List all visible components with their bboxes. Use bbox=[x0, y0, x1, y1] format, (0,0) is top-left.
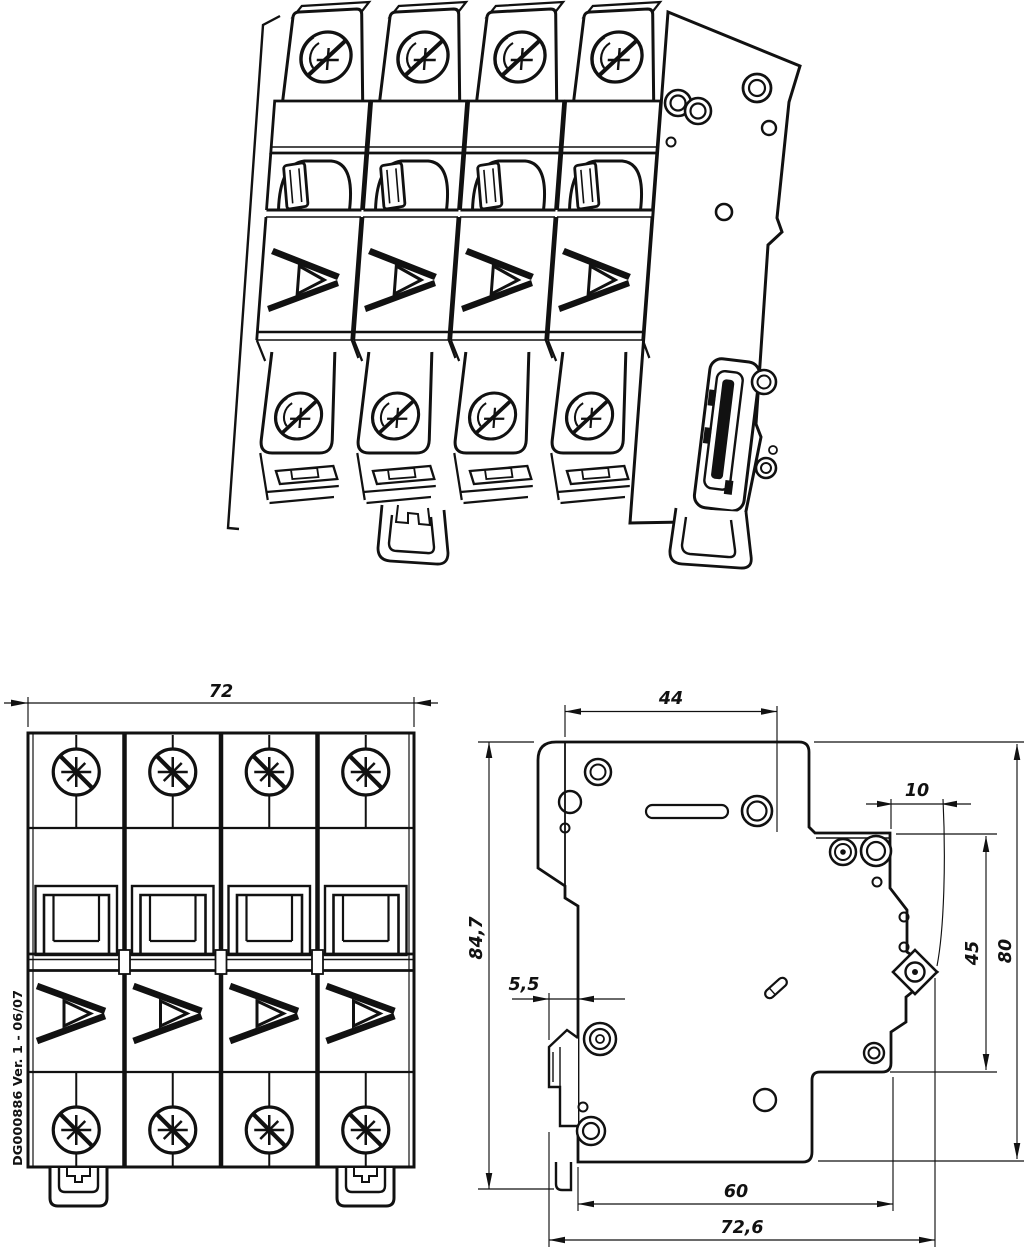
dim-label-terminal-depth: 10 bbox=[905, 781, 929, 801]
dim-label-front-height: 84,7 bbox=[467, 916, 487, 960]
iso-din-clip-right bbox=[670, 508, 751, 568]
dim-label-top-depth: 44 bbox=[658, 689, 683, 709]
dim-label-rear-height: 80 bbox=[996, 939, 1016, 963]
side-din-clip bbox=[549, 1030, 578, 1190]
drawing-page: DG000886 Ver. 1 - 06/07 72 bbox=[0, 0, 1024, 1251]
dim-label-clip-protrusion: 5,5 bbox=[508, 975, 539, 995]
dimension-top-depth: 44 bbox=[565, 689, 777, 737]
iso-din-clip-left bbox=[378, 505, 448, 564]
dim-label-total-depth: 72,6 bbox=[720, 1218, 763, 1238]
isometric-view bbox=[228, 2, 800, 568]
dim-label-base-depth: 60 bbox=[724, 1182, 748, 1202]
technical-drawing: DG000886 Ver. 1 - 06/07 72 bbox=[0, 0, 1024, 1251]
dim-label-front-width: 72 bbox=[209, 682, 233, 702]
front-din-clip-right bbox=[337, 1168, 394, 1206]
part-marking: DG000886 Ver. 1 - 06/07 bbox=[11, 990, 25, 1166]
dim-label-rear-section-height: 45 bbox=[963, 941, 983, 966]
side-view: 44 10 84,7 5,5 45 bbox=[467, 689, 1024, 1247]
iso-side-panel bbox=[630, 12, 800, 523]
dimension-front-width: 72 bbox=[4, 682, 438, 727]
iso-modules bbox=[245, 2, 677, 503]
front-din-clip-left bbox=[50, 1168, 107, 1206]
front-view: DG000886 Ver. 1 - 06/07 72 bbox=[4, 682, 438, 1206]
